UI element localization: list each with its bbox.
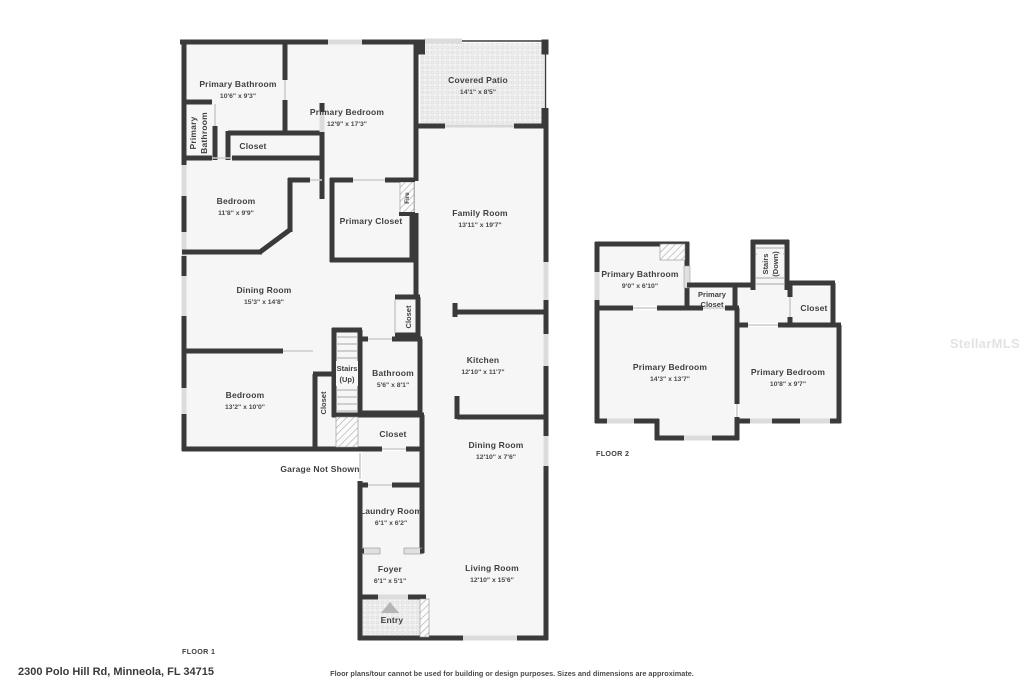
room-label-f2-primary-bedroom-b: Primary Bedroom	[751, 367, 826, 377]
room-label-primary-bathroom: Primary Bathroom	[199, 79, 277, 89]
disclaimer: Floor plans/tour cannot be used for buil…	[330, 669, 694, 678]
room-label-dining-room-a: Dining Room	[236, 285, 291, 295]
room-label-f2-closet: Closet	[800, 303, 827, 313]
room-label-covered-patio: Covered Patio	[448, 75, 508, 85]
room-label-family-room: Family Room	[452, 208, 508, 218]
entry-door-hatch	[420, 599, 429, 637]
room-label-f2-primary-bedroom-a: Primary Bedroom	[633, 362, 708, 372]
room-dims-f2-primary-bedroom-a: 14'3" x 13'7"	[650, 376, 690, 383]
floor-plan-page: Primary Bathroom 10'6" x 9'3" Primary Ba…	[0, 0, 1024, 682]
room-label-closet-c: Closet	[319, 391, 328, 414]
svg-text:Primary: Primary	[188, 116, 198, 149]
room-dims-foyer: 6'1" x 5'1"	[374, 578, 406, 585]
garage-note: Garage Not Shown	[280, 464, 359, 474]
room-dims-kitchen: 12'10" x 11'7"	[461, 369, 504, 376]
room-label-living-room: Living Room	[465, 563, 519, 573]
room-dims-bedroom-b: 13'2" x 10'0"	[225, 404, 265, 411]
room-dims-dining-room-b: 12'10" x 7'6"	[476, 454, 516, 461]
floor-plan-canvas: Primary Bathroom 10'6" x 9'3" Primary Ba…	[0, 0, 1024, 682]
room-label-primary-bathroom-side: Primary Bathroom	[188, 112, 209, 154]
room-label-f2-primary-bathroom: Primary Bathroom	[601, 269, 679, 279]
room-label-laundry: Laundry Room	[360, 506, 423, 516]
room-label-bedroom-a: Bedroom	[217, 196, 256, 206]
room-dims-f2-primary-bathroom: 9'0" x 6'10"	[622, 283, 658, 290]
floor1-label: FLOOR 1	[182, 647, 215, 656]
shower-hatch	[660, 244, 685, 260]
room-label-foyer: Foyer	[378, 564, 403, 574]
address: 2300 Polo Hill Rd, Minneola, FL 34715	[18, 666, 214, 678]
svg-text:Stairs: Stairs	[761, 254, 770, 275]
room-label-dining-room-b: Dining Room	[468, 440, 523, 450]
room-label-f2-stairs-down: Stairs (Down)	[761, 251, 780, 277]
svg-text:Closet: Closet	[404, 305, 413, 328]
room-label-kitchen: Kitchen	[467, 355, 500, 365]
room-label-f2-primary-closet-2: Closet	[701, 300, 724, 309]
room-dims-covered-patio: 14'1" x 8'5"	[460, 89, 496, 96]
room-label-fireplace: Fire	[404, 192, 411, 204]
room-label-bathroom: Bathroom	[372, 368, 414, 378]
room-dims-f2-primary-bedroom-b: 10'8" x 9'7"	[770, 381, 806, 388]
understairs-hatch	[336, 417, 358, 447]
watermark: StellarMLS	[950, 336, 1020, 351]
room-label-closet-a: Closet	[239, 141, 266, 151]
svg-text:Bathroom: Bathroom	[199, 112, 209, 154]
room-label-primary-bedroom: Primary Bedroom	[310, 107, 385, 117]
svg-text:Fire: Fire	[404, 192, 411, 204]
room-dims-living-room: 12'10" x 15'6"	[470, 577, 514, 584]
room-label-bedroom-b: Bedroom	[226, 390, 265, 400]
room-dims-primary-bathroom: 10'6" x 9'3"	[220, 93, 256, 100]
svg-text:Closet: Closet	[319, 391, 328, 414]
room-label-closet-d: Closet	[379, 429, 406, 439]
room-label-primary-closet: Primary Closet	[340, 216, 403, 226]
room-label-f2-primary-closet: Primary	[698, 290, 727, 299]
room-dims-family-room: 13'11" x 19'7"	[458, 222, 501, 229]
room-dims-dining-room-a: 15'3" x 14'8"	[244, 299, 284, 306]
room-dims-bathroom: 5'6" x 8'1"	[377, 382, 409, 389]
room-label-stairs-up-2: (Up)	[340, 375, 355, 384]
room-label-stairs-up: Stairs	[337, 364, 358, 373]
room-dims-bedroom-a: 11'8" x 9'9"	[218, 210, 254, 217]
room-dims-primary-bedroom: 12'9" x 17'3"	[327, 121, 367, 128]
room-label-entry: Entry	[381, 615, 404, 625]
room-dims-laundry: 6'1" x 6'2"	[375, 520, 407, 527]
svg-text:(Down): (Down)	[771, 251, 780, 277]
room-label-closet-b: Closet	[404, 305, 413, 328]
floor2-label: FLOOR 2	[596, 449, 629, 458]
